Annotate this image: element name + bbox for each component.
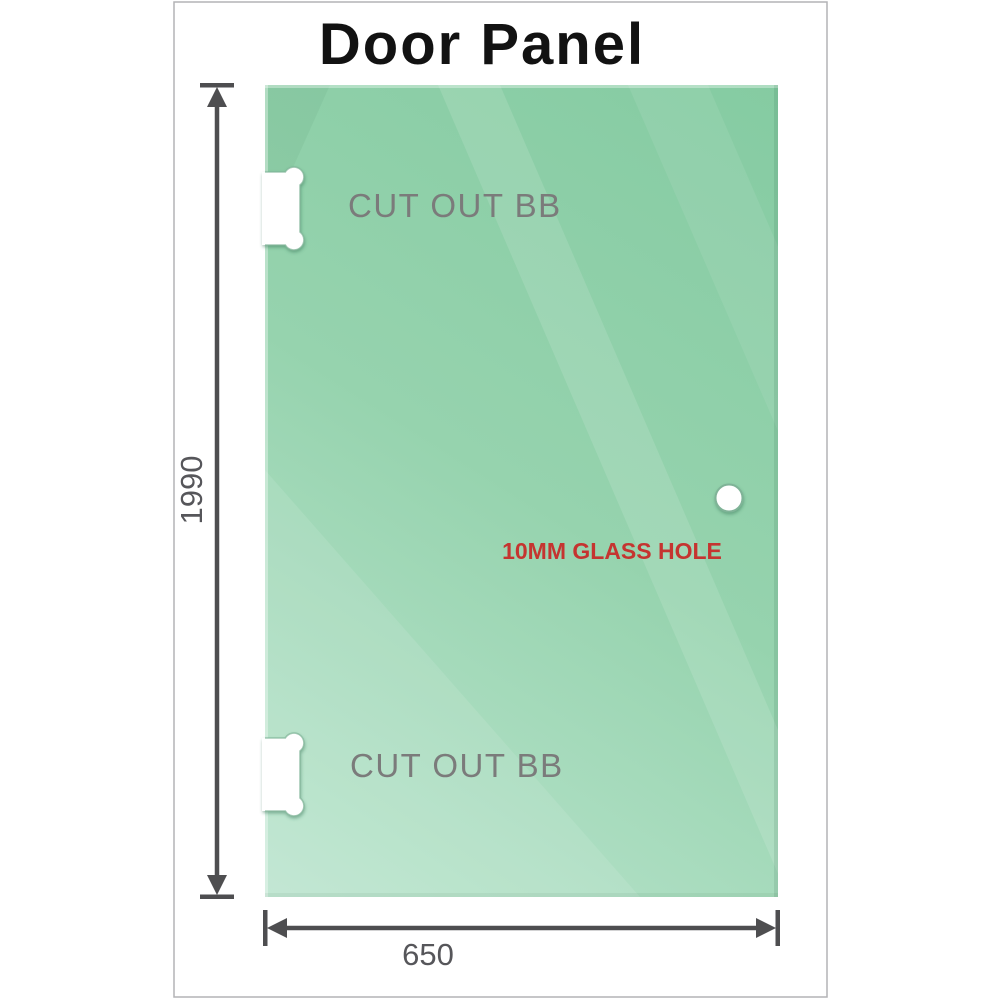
hinge-cutout-bottom	[262, 733, 304, 816]
door-panel-diagram: Door Panel	[0, 0, 1000, 1000]
glass-edge-right-shade	[774, 85, 778, 897]
glass-edge-bottom-shade	[265, 893, 778, 897]
glass-edge-top-highlight	[265, 85, 778, 88]
width-dim-tick-right	[776, 910, 781, 946]
width-dim-tick-left	[263, 910, 268, 946]
width-dim-label: 650	[402, 937, 454, 972]
cutout-top-label: CUT OUT BB	[348, 187, 562, 224]
diagram-canvas: Door Panel	[0, 0, 1000, 1000]
hinge-cutout-top-fill	[262, 167, 304, 250]
glass-hole	[716, 485, 743, 512]
cutout-bottom-label: CUT OUT BB	[350, 747, 564, 784]
glass-hole-label: 10MM GLASS HOLE	[502, 538, 722, 564]
hinge-cutout-bottom-fill	[262, 733, 304, 816]
height-dim-label: 1990	[174, 456, 209, 525]
height-dim-tick-bottom	[200, 895, 234, 900]
hinge-cutout-top	[262, 167, 304, 250]
page-title: Door Panel	[319, 12, 645, 77]
height-dim-tick-top	[200, 83, 234, 88]
